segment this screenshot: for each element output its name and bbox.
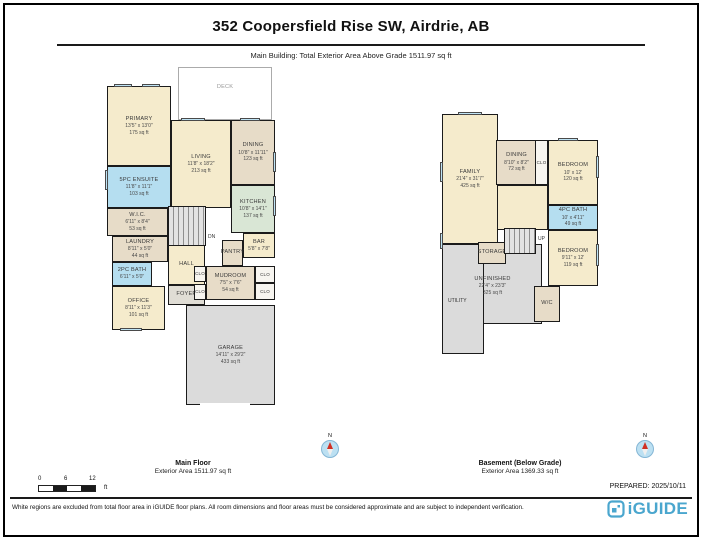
- room-primary: PRIMARY 13'5" x 13'0" 175 sq ft: [107, 86, 171, 166]
- page-title: 352 Coopersfield Rise SW, Airdrie, AB: [0, 18, 702, 35]
- compass-icon: [636, 440, 654, 458]
- page-subtitle: Main Building: Total Exterior Area Above…: [0, 51, 702, 60]
- room-garage: GARAGE 14'11" x 29'2" 433 sq ft: [186, 305, 275, 405]
- window: [440, 162, 443, 182]
- window: [273, 196, 276, 216]
- room-bedroom-2: BEDROOM 9'11" x 12' 119 sq ft: [548, 230, 598, 286]
- unfinished-label: UNFINISHED 22'4" x 23'3" 325 sq ft: [455, 276, 530, 296]
- window: [114, 84, 132, 87]
- main-floor-title: Main Floor: [113, 459, 273, 468]
- room-closet: CLO: [194, 266, 206, 282]
- basement-area: Exterior Area 1369.33 sq ft: [440, 468, 600, 477]
- compass-main: N: [320, 433, 340, 458]
- room-laundry: LAUNDRY 8'11" x 5'0" 44 sq ft: [112, 236, 168, 262]
- basement-hall-area: [496, 185, 548, 230]
- room-dining-main: DINING 10'8" x 11'11" 123 sq ft: [231, 120, 275, 185]
- scale-bar: 0 6 12: [38, 476, 96, 492]
- compass-basement: N: [635, 433, 655, 458]
- room-mudroom: MUDROOM 7'5" x 7'6" 54 sq ft: [206, 266, 255, 300]
- window: [596, 244, 599, 266]
- disclaimer-text: White regions are excluded from total fl…: [12, 504, 572, 511]
- room-4pc-bath: 4PC BATH 10' x 4'11" 49 sq ft: [548, 205, 598, 230]
- window: [273, 152, 276, 172]
- iguide-logo-text: iGUIDE: [628, 499, 688, 519]
- iguide-logo: iGUIDE: [607, 499, 688, 519]
- window: [558, 138, 578, 141]
- iguide-logo-icon: [607, 500, 625, 518]
- main-floor-area: Exterior Area 1511.97 sq ft: [113, 468, 273, 477]
- window: [105, 170, 108, 190]
- room-closet: CLO: [535, 140, 548, 185]
- basement-caption: Basement (Below Grade) Exterior Area 136…: [440, 459, 600, 477]
- room-kitchen: KITCHEN 10'8" x 14'1" 137 sq ft: [231, 185, 275, 233]
- utility-label: UTILITY: [448, 298, 467, 304]
- stairs-down: [168, 206, 206, 246]
- title-divider: [57, 44, 645, 46]
- window: [181, 118, 205, 121]
- compass-n-label: N: [643, 433, 647, 439]
- room-wic: W.I.C. 6'11" x 8'4" 53 sq ft: [107, 208, 168, 236]
- room-closet: CLO: [194, 284, 206, 300]
- scale-bar-segments: [38, 485, 96, 492]
- stairs-down-label: DN: [208, 234, 215, 240]
- scale-unit: ft: [104, 485, 107, 491]
- garage-door-opening: [200, 403, 250, 406]
- room-closet: CLO: [255, 266, 275, 283]
- prepared-date: PREPARED: 2025/10/11: [610, 483, 686, 490]
- window: [440, 233, 443, 249]
- room-ensuite: 5PC ENSUITE 11'8" x 11'1" 103 sq ft: [107, 166, 171, 208]
- room-deck: DECK: [178, 67, 272, 120]
- room-2pc-bath: 2PC BATH 6'11" x 5'0": [112, 262, 152, 286]
- window: [458, 112, 482, 115]
- window: [240, 118, 260, 121]
- room-bedroom-1: BEDROOM 10' x 12' 120 sq ft: [548, 140, 598, 205]
- main-floor-caption: Main Floor Exterior Area 1511.97 sq ft: [113, 459, 273, 477]
- footer-divider: [10, 497, 692, 499]
- basement-title: Basement (Below Grade): [440, 459, 600, 468]
- room-bar: BAR 5'8" x 7'8": [243, 233, 275, 258]
- room-storage: STORAGE: [478, 242, 506, 264]
- floorplan-page: 352 Coopersfield Rise SW, Airdrie, AB Ma…: [0, 0, 702, 540]
- scale-tick: 0: [38, 476, 41, 482]
- window: [120, 328, 142, 331]
- room-closet: CLO: [255, 283, 275, 300]
- compass-n-label: N: [328, 433, 332, 439]
- window: [596, 156, 599, 178]
- window: [142, 84, 160, 87]
- room-family: FAMILY 21'4" x 31'7" 425 sq ft: [442, 114, 498, 244]
- room-pantry: PANTRY: [222, 240, 243, 266]
- compass-icon: [321, 440, 339, 458]
- room-wc: W/C: [534, 286, 560, 322]
- room-dining-basement: DINING 8'10" x 8'2" 72 sq ft: [496, 140, 537, 185]
- stairs-up: [504, 228, 536, 254]
- scale-ticks: 0 6 12: [38, 476, 96, 484]
- stairs-up-label: UP: [538, 236, 545, 242]
- room-office: OFFICE 8'11" x 11'3" 101 sq ft: [112, 286, 165, 330]
- scale-tick: 12: [89, 476, 96, 482]
- room-living: LIVING 11'8" x 18'2" 213 sq ft: [171, 120, 231, 208]
- scale-tick: 6: [64, 476, 67, 482]
